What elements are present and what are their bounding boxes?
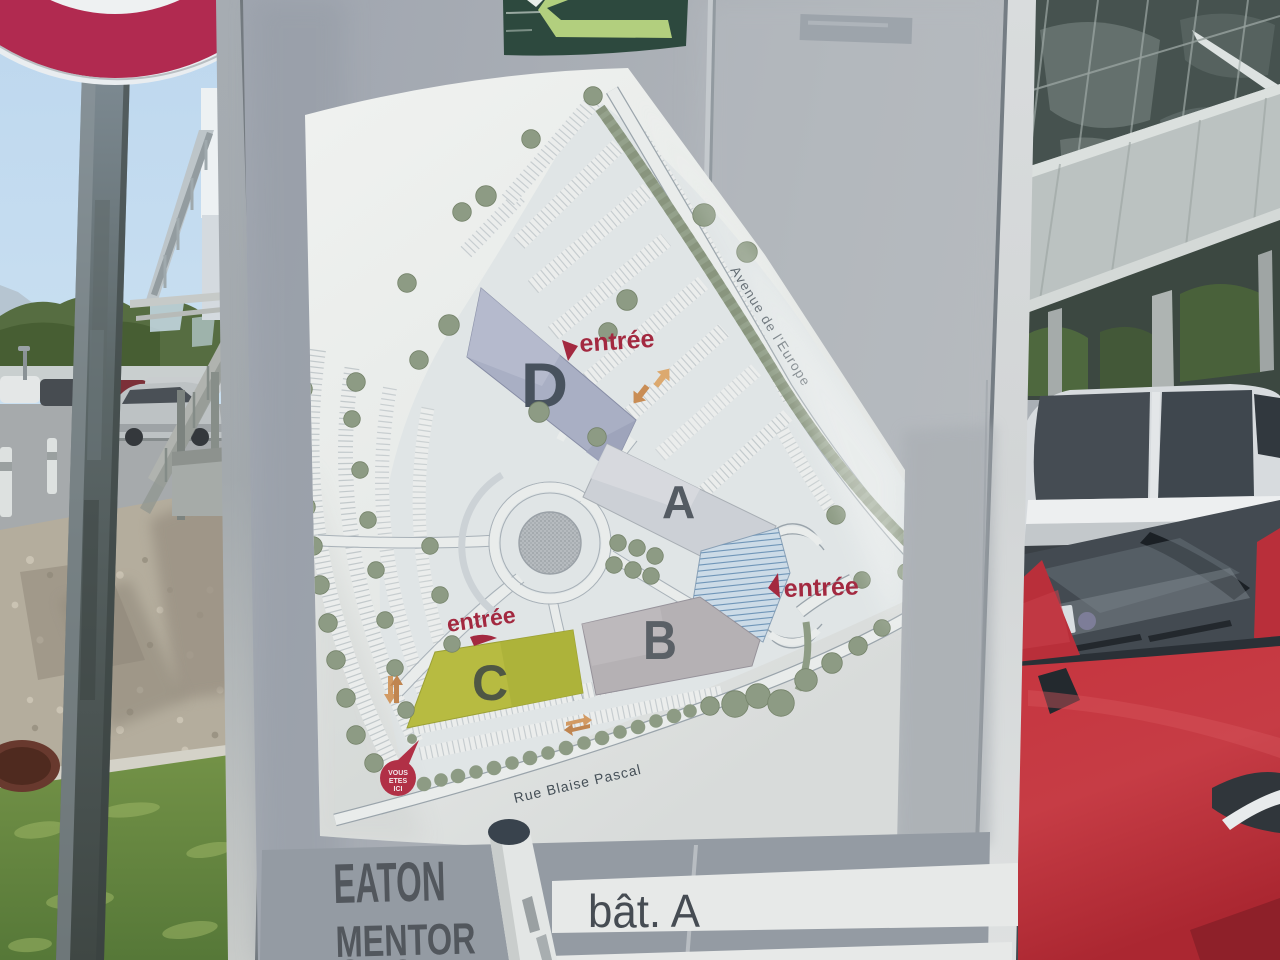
- svg-text:entrée: entrée: [578, 325, 655, 358]
- svg-text:A: A: [662, 476, 695, 528]
- svg-text:ICI: ICI: [394, 786, 403, 793]
- svg-text:EATON: EATON: [333, 849, 447, 915]
- svg-text:C: C: [472, 655, 508, 711]
- svg-text:GROUP: GROUP: [336, 951, 466, 960]
- svg-text:VOUS: VOUS: [388, 770, 408, 777]
- svg-text:B: B: [643, 609, 677, 671]
- svg-text:entrée: entrée: [783, 572, 859, 603]
- svg-text:ETES: ETES: [389, 778, 408, 785]
- svg-text:bât. A: bât. A: [588, 885, 700, 937]
